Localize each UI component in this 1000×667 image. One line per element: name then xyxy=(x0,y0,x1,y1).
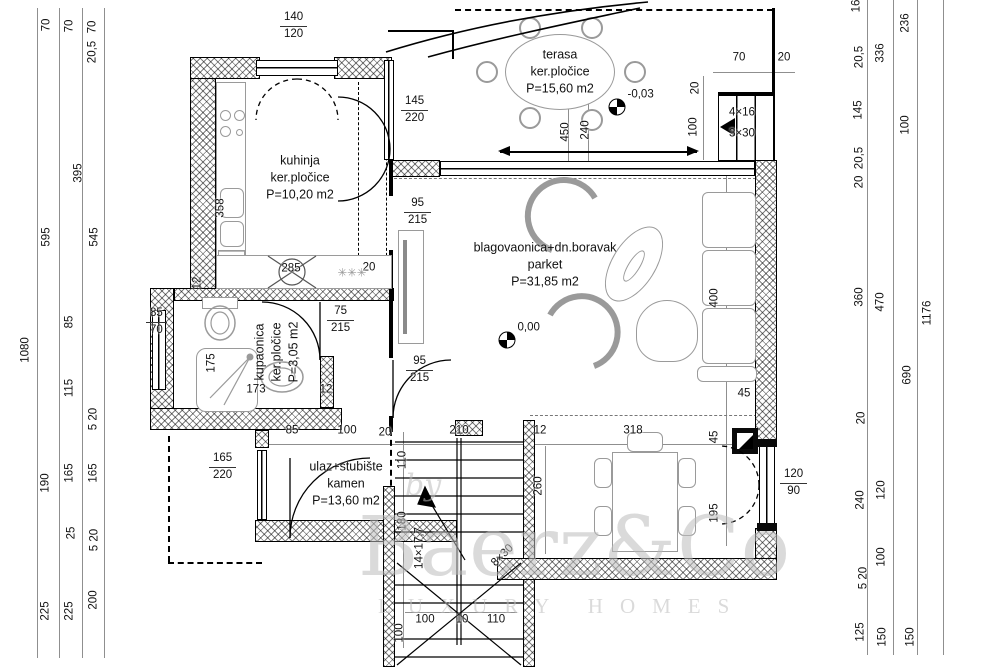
dimension-label: 5 20 xyxy=(858,567,870,589)
room-name: ulaz+stubište xyxy=(309,459,382,476)
dimension-label: 145 xyxy=(853,100,865,119)
elevation-marker-icon xyxy=(499,332,516,349)
dimension-label: 595 xyxy=(41,227,53,246)
opening-width: 75 xyxy=(327,304,354,321)
canopy-curve xyxy=(386,2,648,52)
dimension-label: 236 xyxy=(900,13,912,32)
elevation-marker: 0,00 xyxy=(499,332,516,349)
dimension-label: 180 xyxy=(397,511,409,530)
elevation-value: 0,00 xyxy=(518,322,540,334)
room-label: terasa ker.pločice P=15,60 m2 xyxy=(526,47,594,98)
dimension-label: 10 xyxy=(456,614,469,626)
opening-height: 70 xyxy=(146,323,167,339)
opening-height: 220 xyxy=(209,468,236,484)
opening-height: 215 xyxy=(327,321,354,337)
dimension-label: 70 xyxy=(87,21,99,34)
wc-bowl-inner xyxy=(211,312,229,334)
opening-size-label: 85 70 xyxy=(146,306,167,338)
dimension-label: 115 xyxy=(64,379,76,397)
dimension-label: 225 xyxy=(40,601,52,620)
dimension-label: 14×17,7 xyxy=(414,527,426,569)
room-name: kuhinja xyxy=(266,153,334,170)
dimension-label: 20,5 xyxy=(854,147,866,169)
dimension-label: 70 xyxy=(64,20,76,33)
dimension-label: 120 xyxy=(876,480,888,499)
dimension-label: 165 xyxy=(88,463,100,482)
opening-height: 220 xyxy=(401,111,428,127)
opening-height: 215 xyxy=(404,213,431,229)
dimension-label: 110 xyxy=(487,614,505,626)
opening-height: 215 xyxy=(406,371,433,387)
shutter-arc-icon xyxy=(720,446,759,485)
dimension-label: 20 xyxy=(856,412,868,425)
opening-width: 165 xyxy=(209,451,236,468)
opening-width: 145 xyxy=(401,94,428,111)
opening-size-label: 165 220 xyxy=(209,451,236,483)
room-finish: ker.pločice xyxy=(266,170,334,187)
shutter-arc-icon xyxy=(256,79,297,120)
dimension-label: 125 xyxy=(855,622,867,641)
door-arc-icon xyxy=(338,97,390,149)
room-label: kuhinja ker.pločice P=10,20 m2 xyxy=(266,153,334,204)
dimension-label: 100 xyxy=(415,614,434,626)
room-area: P=31,85 m2 xyxy=(474,273,617,290)
dimension-label: 5 20 xyxy=(88,408,100,430)
room-area: P=3,05 m2 xyxy=(285,322,302,383)
room-area: P=13,60 m2 xyxy=(309,492,382,509)
opening-width: 95 xyxy=(406,354,433,371)
dimension-label: 100 xyxy=(337,425,356,437)
room-area: P=10,20 m2 xyxy=(266,186,334,203)
dimension-label: 210 xyxy=(449,425,468,437)
shower-spray xyxy=(224,357,250,405)
room-finish: kamen xyxy=(309,476,382,493)
opening-width: 120 xyxy=(780,467,807,484)
dimension-label: 4×16 xyxy=(729,107,755,119)
room-area: P=15,60 m2 xyxy=(526,80,594,97)
dimension-label: ✳✳✳ xyxy=(338,268,367,280)
dimension-label: 100 xyxy=(876,547,888,566)
dimension-label: 358 xyxy=(215,198,227,217)
floor-plan: 70707020,55955453951080851155 2019016516… xyxy=(0,0,1000,667)
dimension-label: 100 xyxy=(688,117,700,136)
opening-size-label: 75 215 xyxy=(327,304,354,336)
dimension-label: 12 xyxy=(192,277,204,290)
dimension-label: 150 xyxy=(877,627,889,646)
shutter-arc-icon xyxy=(720,485,759,524)
dimension-label: 190 xyxy=(40,473,52,492)
curved-armchair xyxy=(550,296,618,366)
opening-size-label: 120 90 xyxy=(780,467,807,499)
dimension-label: 20 xyxy=(690,82,702,95)
opening-width: 85 xyxy=(146,306,167,323)
dimension-label: 70 xyxy=(41,19,53,32)
dimension-label: 110 xyxy=(397,451,409,469)
dimension-label: 85 xyxy=(64,316,76,329)
elevation-marker: -0,03 xyxy=(609,99,626,116)
wc-bowl xyxy=(205,306,235,340)
dimension-label: 175 xyxy=(206,353,218,372)
dimension-label: 16 xyxy=(851,0,863,12)
opening-width: 140 xyxy=(280,10,307,27)
dimension-label: 70 xyxy=(733,52,746,64)
opening-size-label: 140 120 xyxy=(280,10,307,42)
room-label: ulaz+stubište kamen P=13,60 m2 xyxy=(309,459,382,510)
shutter-arc-icon xyxy=(297,79,338,120)
dimension-label: 150 xyxy=(905,627,917,646)
dimension-label: 20 xyxy=(778,52,791,64)
dimension-label: 45 xyxy=(709,431,721,444)
dimension-label: 395 xyxy=(73,163,85,182)
elevation-value: -0,03 xyxy=(628,89,654,101)
elevation-marker-icon xyxy=(609,99,626,116)
dimension-label: 285 xyxy=(281,263,300,275)
dimension-label: 336 xyxy=(875,43,887,62)
dimension-label: 85 xyxy=(286,425,299,437)
dimension-label: 165 xyxy=(64,463,76,482)
dimension-label: 20 xyxy=(854,176,866,189)
dimension-label: 195 xyxy=(709,503,721,522)
room-name: kupaonica xyxy=(252,322,269,383)
room-finish: ker.pločice xyxy=(269,322,286,383)
room-label: blagovaonica+dn.boravak parket P=31,85 m… xyxy=(474,240,617,291)
dimension-label: 12 xyxy=(320,384,333,396)
opening-size-label: 95 215 xyxy=(406,354,433,386)
dimension-label: 400 xyxy=(709,288,721,307)
door-arc-icon xyxy=(338,149,390,201)
room-finish: parket xyxy=(474,257,617,274)
dimension-label: 240 xyxy=(580,120,592,139)
dimension-label: 545 xyxy=(89,227,101,246)
dimension-label: 200 xyxy=(88,590,100,609)
dimension-label: 690 xyxy=(902,365,914,384)
room-finish: ker.pločice xyxy=(526,64,594,81)
dimension-label: 3×30 xyxy=(729,128,755,140)
dimension-label: 20,5 xyxy=(854,46,866,68)
dimension-label: 1176 xyxy=(922,301,934,326)
dimension-label: 360 xyxy=(854,287,866,306)
opening-height: 120 xyxy=(280,27,307,43)
dimension-label: 260 xyxy=(533,476,545,495)
opening-height: 90 xyxy=(780,484,807,500)
dimension-label: 225 xyxy=(64,601,76,620)
dimension-label: 1080 xyxy=(20,337,32,363)
dimension-label: 100 xyxy=(900,115,912,134)
dimension-label: 450 xyxy=(560,122,572,141)
opening-size-label: 145 220 xyxy=(401,94,428,126)
dimension-label: 470 xyxy=(875,292,887,311)
dimension-label: 173 xyxy=(246,384,265,396)
dimension-label: 5 20 xyxy=(89,529,101,551)
room-name: terasa xyxy=(526,47,594,64)
dimension-label: 45 xyxy=(738,388,751,400)
room-label: kupaonica ker.pločice P=3,05 m2 xyxy=(252,322,303,383)
opening-width: 95 xyxy=(404,196,431,213)
dimension-label: 25 xyxy=(66,527,78,540)
opening-size-label: 95 215 xyxy=(404,196,431,228)
dimension-label: 20 xyxy=(379,427,392,439)
dimension-label: 12 xyxy=(534,425,547,437)
dimension-label: 318 xyxy=(623,425,642,437)
dimension-label: 20,5 xyxy=(87,41,99,63)
dimension-label: 100 xyxy=(394,623,406,642)
room-name: blagovaonica+dn.boravak xyxy=(474,240,617,257)
dimension-label: 240 xyxy=(855,490,867,509)
